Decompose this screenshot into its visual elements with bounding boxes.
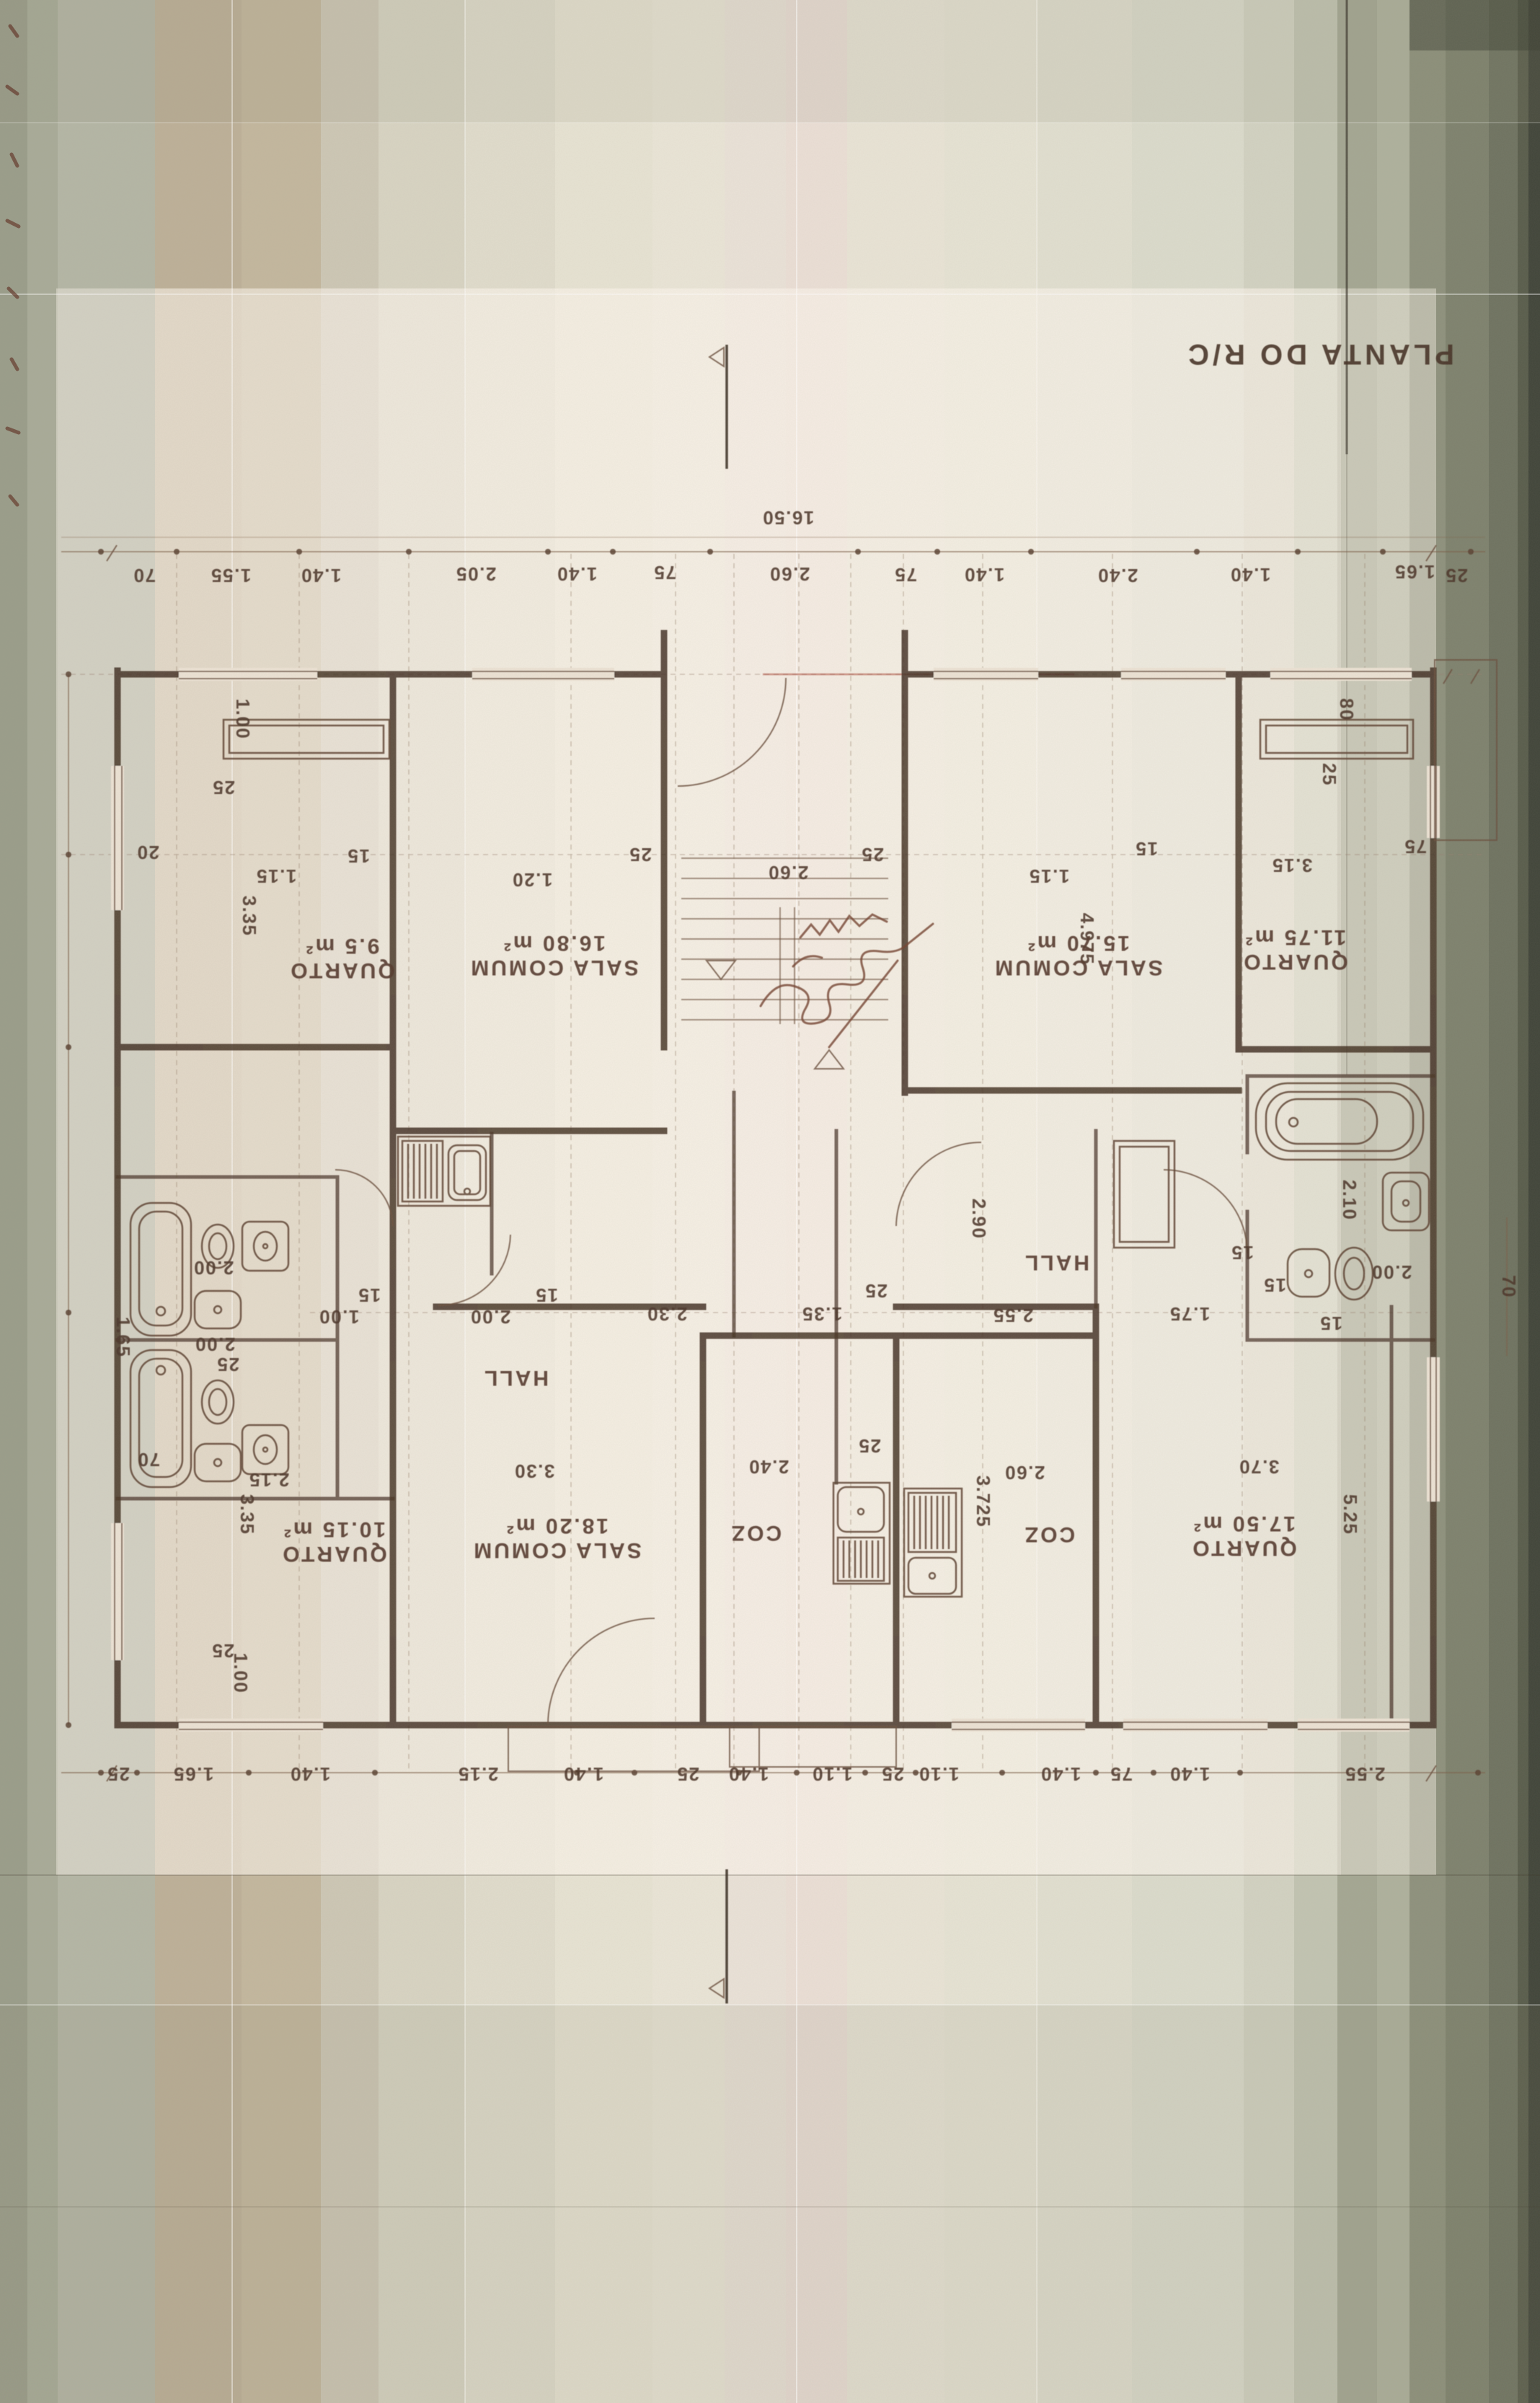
floor-plan-drawing: PLANTA DO R/C	[0, 0, 1540, 2403]
scanned-floor-plan-sheet: PLANTA DO R/C	[0, 0, 1540, 2403]
paper-grain-overlay	[0, 0, 1540, 2403]
